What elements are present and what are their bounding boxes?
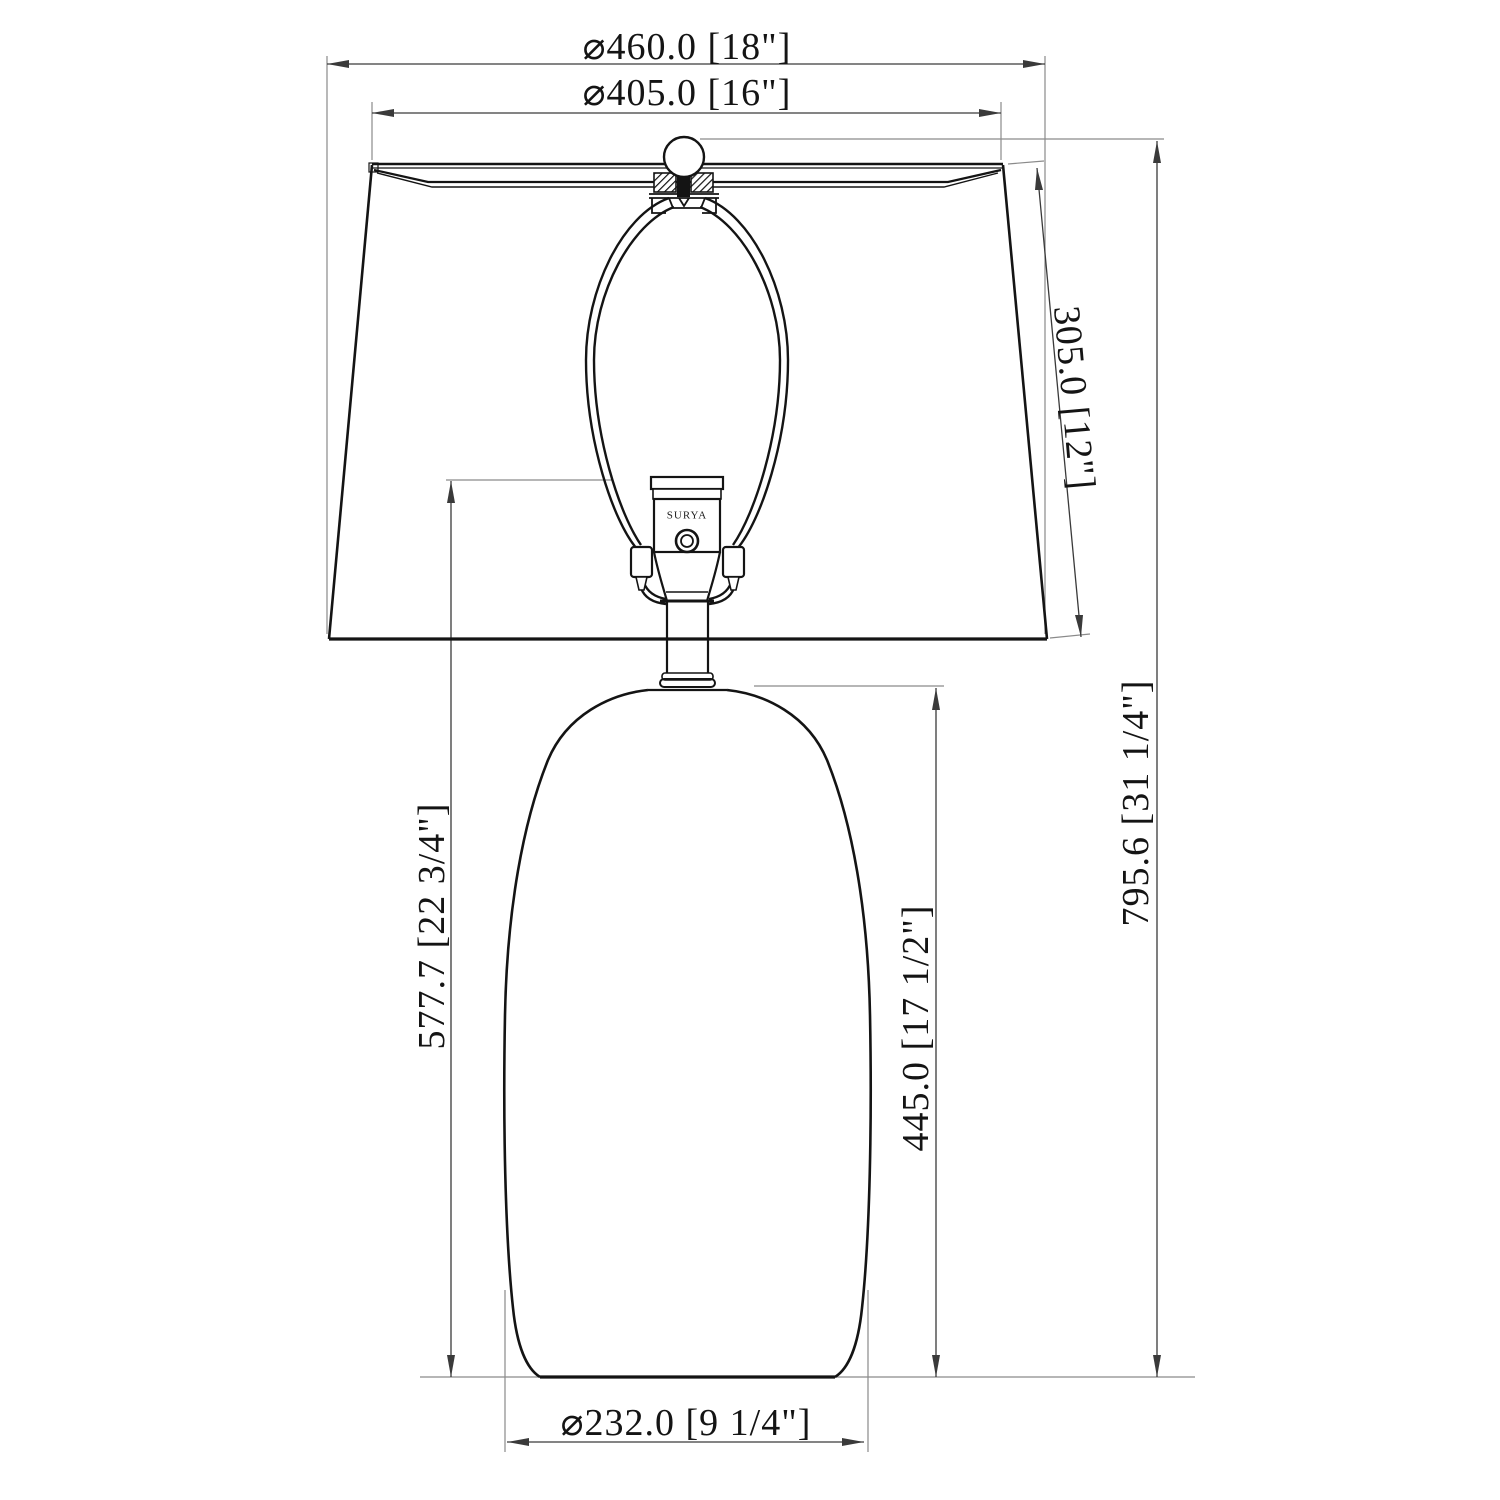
lamp-neck [660, 601, 715, 687]
dimension-arrowheads [327, 60, 1161, 1446]
dim-label-body-height: 445.0 [17 1/2"] [897, 905, 935, 1152]
finial-ball [664, 137, 704, 177]
lamp-technical-drawing-canvas [0, 0, 1500, 1500]
harp-end-caps [631, 547, 744, 590]
dim-label-shade-bottom-diameter: ⌀460.0 [18"] [583, 28, 792, 66]
dimension-lines [327, 64, 1157, 1442]
socket-brand-label: SURYA [667, 511, 707, 522]
extension-lines [327, 56, 1195, 1452]
lamp-body [504, 690, 870, 1377]
dim-label-overall-height: 795.6 [31 1/4"] [1117, 680, 1155, 927]
socket [651, 477, 723, 601]
dim-label-base-top-height: 577.7 [22 3/4"] [413, 803, 451, 1050]
lamp-shade [329, 163, 1047, 639]
lamp-dimension-drawing-page: ⌀460.0 [18"] ⌀405.0 [16"] 305.0 [12"] 79… [0, 0, 1500, 1500]
dim-label-base-diameter: ⌀232.0 [9 1/4"] [561, 1404, 812, 1442]
dim-label-shade-top-diameter: ⌀405.0 [16"] [583, 74, 792, 112]
